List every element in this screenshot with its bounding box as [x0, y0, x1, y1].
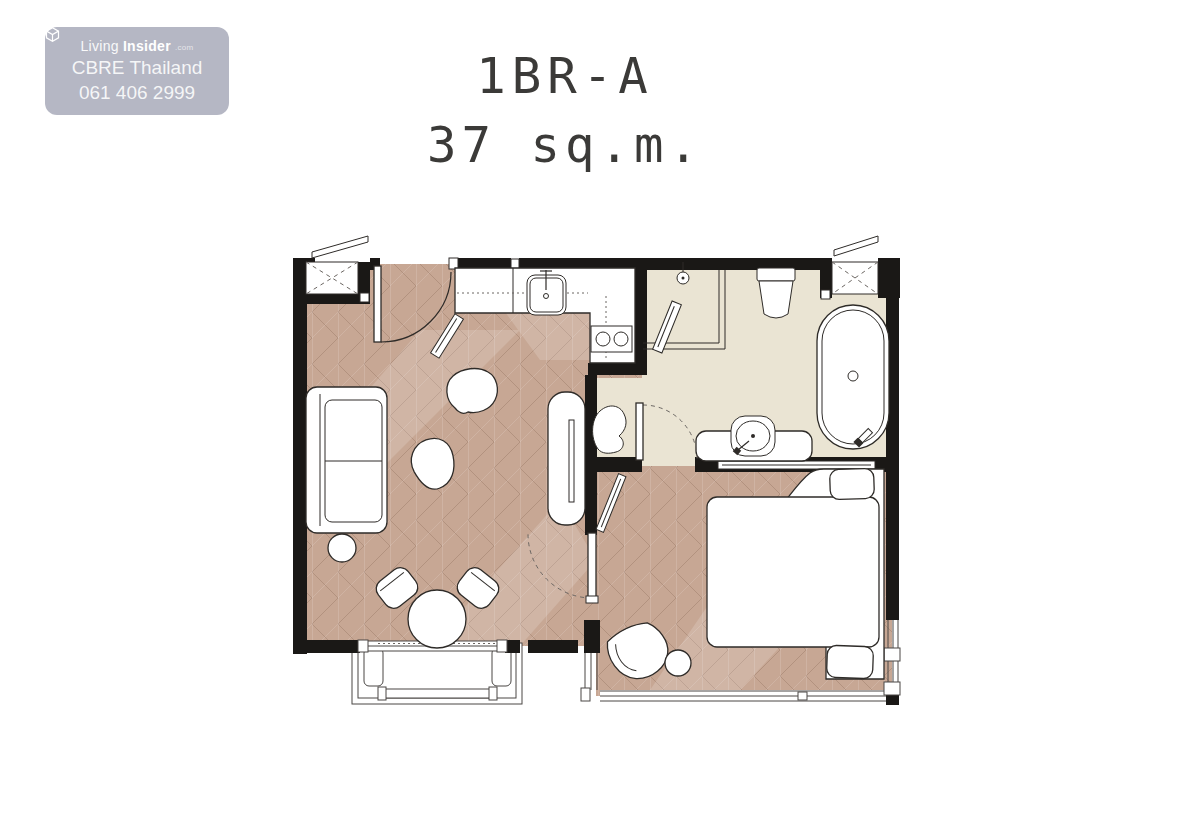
wall-bottom-living [528, 640, 578, 653]
wall-junction [360, 293, 369, 302]
aircon-louver [834, 236, 878, 256]
sofa [306, 387, 387, 533]
wall-top-bathroom [647, 258, 830, 270]
wall-kitchen-bottom [588, 363, 647, 375]
ottoman [665, 650, 691, 676]
toilet-bowl [759, 281, 793, 318]
dining-table [408, 590, 466, 648]
bed-pillow [826, 645, 873, 679]
bed [707, 468, 884, 679]
aircon-unit-left [304, 236, 370, 304]
wall-right [886, 258, 899, 620]
window-bedroom [600, 690, 886, 702]
balcony-rail [383, 689, 492, 698]
floorplan-page: LivingInsider.com CBRE Thailand 061 406 … [0, 0, 1200, 823]
wall-bath-bottom [597, 457, 642, 472]
door-leaf [588, 533, 596, 598]
balcony-rail-cap [489, 687, 497, 700]
balcony-rail-cap [378, 687, 386, 700]
toilet-tank [757, 268, 795, 281]
balcony-planter [492, 648, 511, 686]
wall-junction [821, 290, 830, 299]
tv-screen [569, 420, 574, 502]
door-leaf [636, 403, 643, 460]
bed-duvet [707, 497, 879, 647]
bed-pillow [829, 468, 874, 500]
door-leaf-cap [586, 596, 598, 603]
balcony-planter [364, 648, 383, 686]
wall-left [293, 258, 307, 654]
pouf [447, 369, 498, 414]
wall-bottom-living [293, 640, 360, 653]
aircon-unit-right [820, 236, 900, 299]
side-table [328, 534, 356, 562]
floorplan-drawing [0, 0, 1200, 823]
aircon-louver [312, 236, 368, 258]
bathtub [817, 305, 889, 449]
door-leaf [374, 266, 381, 342]
window-connector [581, 653, 597, 701]
wall-living-divider [585, 375, 597, 535]
tv-console [548, 392, 585, 525]
wall-kitchen-bath [635, 258, 647, 375]
stove [591, 326, 632, 352]
wall-bedroom-corner [584, 620, 600, 653]
laundry-pouf [593, 406, 626, 453]
